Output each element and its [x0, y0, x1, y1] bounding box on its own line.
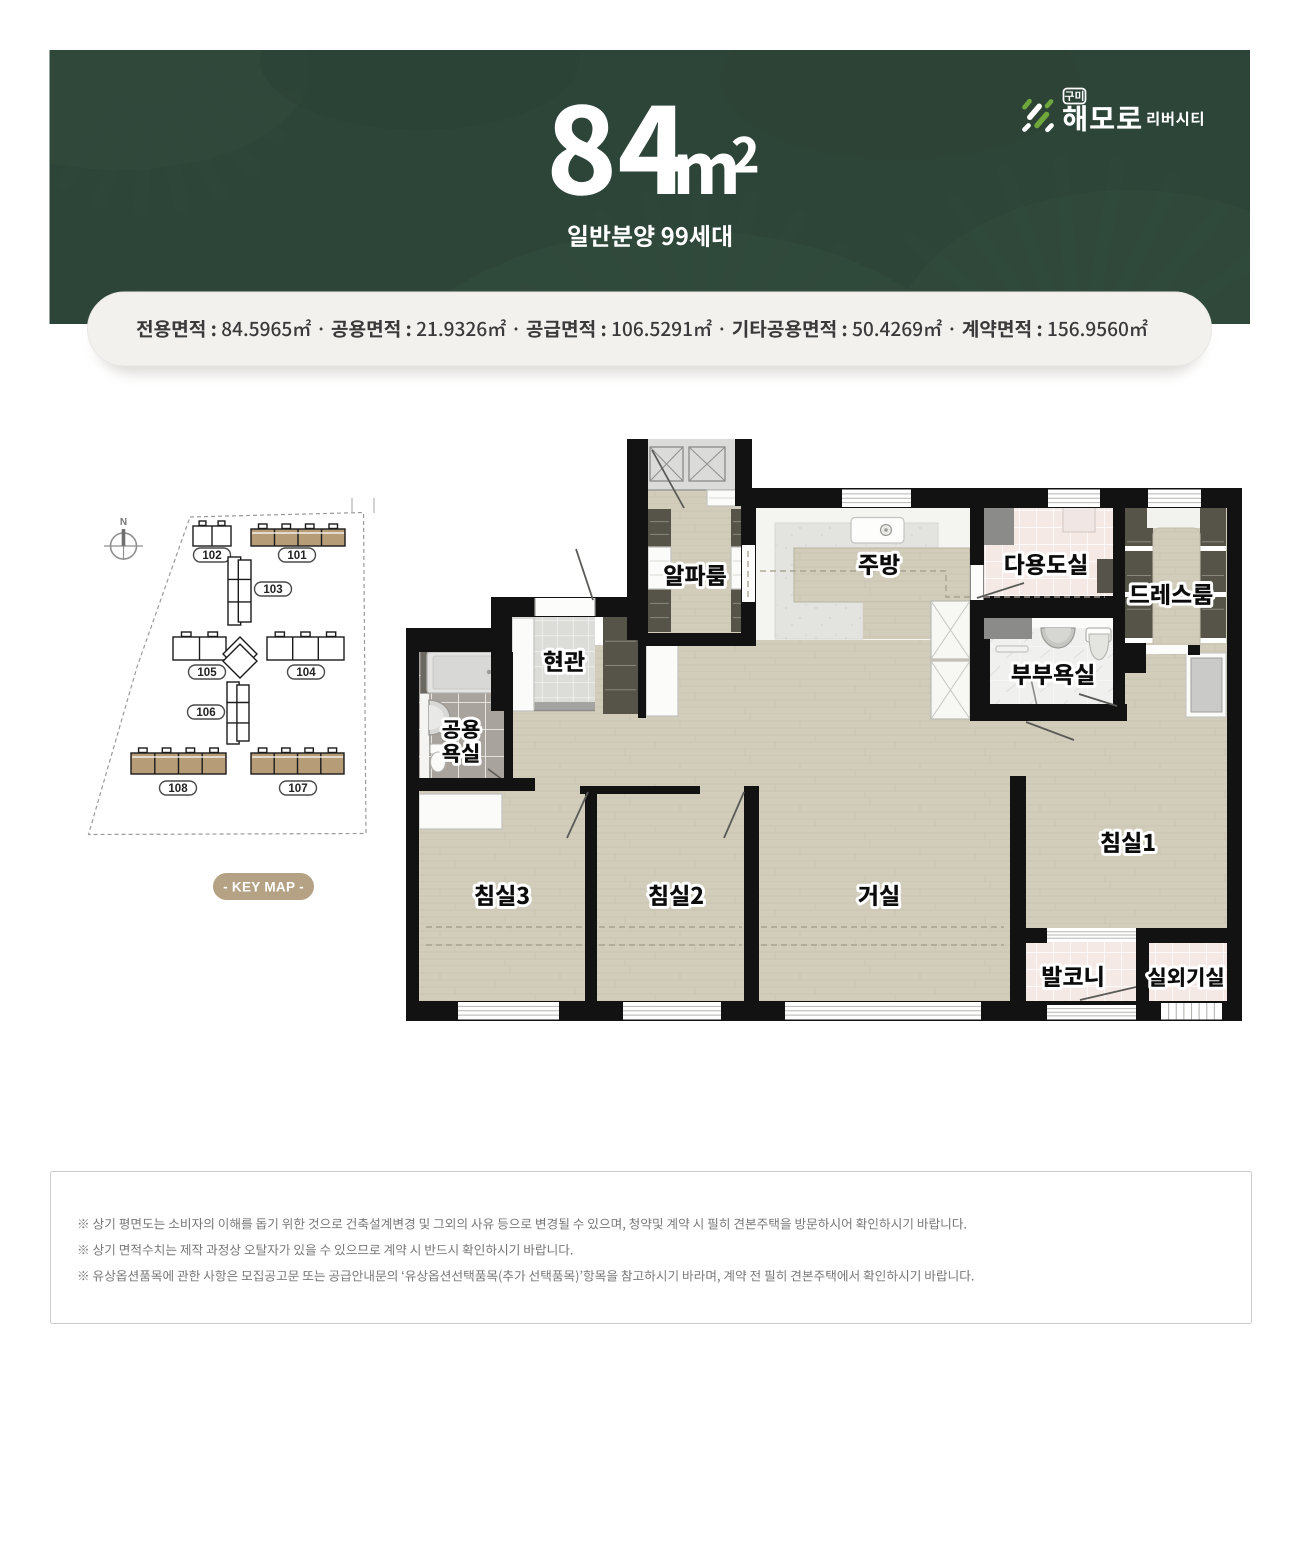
svg-text:105: 105	[197, 667, 217, 679]
svg-text:102: 102	[202, 550, 221, 562]
svg-text:108: 108	[168, 783, 188, 795]
svg-text:101: 101	[287, 550, 307, 562]
svg-text:103: 103	[263, 584, 282, 596]
svg-text:- KEY MAP -: - KEY MAP -	[223, 880, 304, 895]
svg-text:104: 104	[296, 667, 316, 679]
svg-text:106: 106	[196, 707, 215, 719]
svg-text:107: 107	[288, 783, 307, 795]
svg-text:N: N	[120, 517, 127, 528]
